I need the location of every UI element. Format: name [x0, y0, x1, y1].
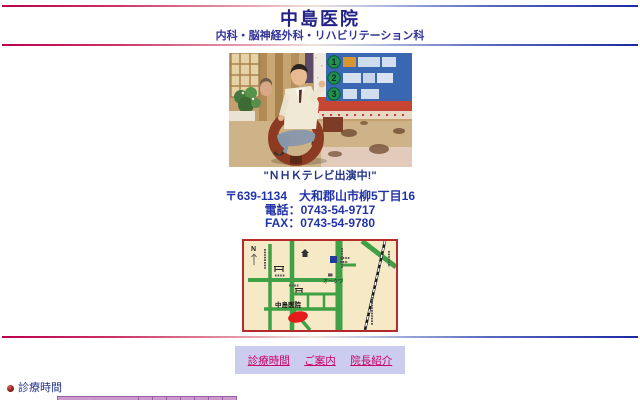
gradient-rule-under-header: [2, 44, 638, 46]
page-title: 中島医院: [0, 9, 640, 29]
side-table: [323, 117, 343, 132]
schedule-col-tue: 火: [153, 396, 167, 400]
board-number-2: 2: [331, 73, 336, 83]
page: 中島医院 内科・脳神経外科・リハビリテーション科: [0, 0, 640, 400]
map-north-arrow: N: [251, 246, 257, 265]
schedule-heading-label: 診療時間: [18, 383, 62, 394]
schedule-col-fri: 金: [195, 396, 209, 400]
torii-icon-2: [295, 288, 303, 293]
store-icon: [328, 273, 333, 276]
torii-icon: [274, 266, 284, 272]
clinic-label: 中島医院: [275, 300, 302, 309]
schedule-col-time: 時間: [58, 396, 139, 400]
postal-address: 〒639-1134 大和郡山市柳5丁目16: [0, 190, 640, 204]
map-tiny-text-marks: [265, 248, 389, 325]
board-number-1: 1: [331, 57, 336, 67]
studio-photo: 1 2 3: [229, 53, 412, 167]
nav-link-guide[interactable]: ご案内: [304, 355, 336, 367]
second-person: [260, 78, 272, 96]
schedule-heading: 診療時間: [7, 383, 640, 394]
info-board: 1 2 3: [319, 53, 412, 119]
gradient-rule-bottom: [2, 336, 638, 338]
nav-link-hours[interactable]: 診療時間: [248, 355, 290, 367]
schedule-col-sun: 日: [223, 396, 237, 400]
schedule-table: 時間 月 火 水 木 金 土 日: [57, 396, 237, 400]
schedule-col-thu: 木: [181, 396, 195, 400]
nav-box: 診療時間 ご案内 院長紹介: [235, 346, 405, 374]
shrine-icon: [301, 249, 309, 257]
gradient-rule-top: [2, 5, 638, 7]
north-label: N: [251, 246, 256, 253]
map-railway: [365, 241, 385, 330]
access-map: N オークワ: [242, 239, 398, 332]
photo-caption: "ＮＨＫテレビ出演中!": [0, 170, 640, 182]
nav-row: 診療時間 ご案内 院長紹介: [0, 346, 640, 374]
schedule-header-row: 時間 月 火 水 木 金 土 日: [58, 396, 237, 400]
schedule-col-mon: 月: [139, 396, 153, 400]
phone-number: 電話：0743-54-9717: [0, 204, 640, 218]
schedule-col-sat: 土: [209, 396, 223, 400]
schedule-col-wed: 水: [167, 396, 181, 400]
studio-photo-illustration: 1 2 3: [229, 53, 412, 167]
address-block: 〒639-1134 大和郡山市柳5丁目16 電話：0743-54-9717 FA…: [0, 190, 640, 231]
bullet-ball-icon: [7, 385, 14, 392]
nav-link-director[interactable]: 院長紹介: [350, 355, 392, 367]
page-subtitle: 内科・脳神経外科・リハビリテーション科: [0, 30, 640, 42]
fax-number: FAX：0743-54-9780: [0, 217, 640, 231]
access-map-illustration: N オークワ: [244, 241, 396, 330]
building-marker: [330, 256, 337, 263]
board-number-3: 3: [331, 89, 336, 99]
store-label: オークワ: [323, 279, 343, 285]
